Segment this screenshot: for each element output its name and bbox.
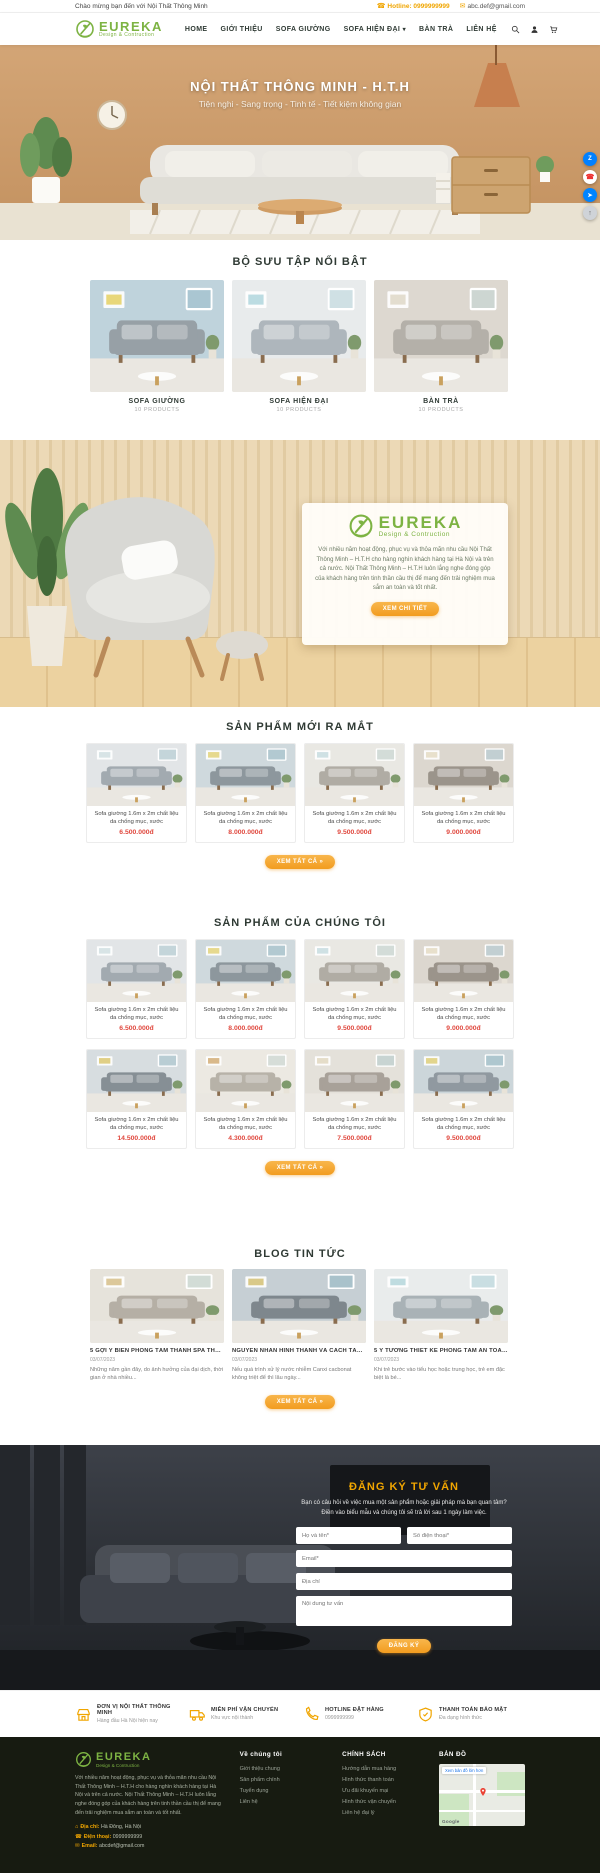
product-photo [196, 940, 295, 1002]
product-card[interactable]: Sofa giường 1.6m x 2m chất liệu da chống… [86, 743, 187, 843]
product-price: 7.500.000đ [305, 1133, 404, 1148]
product-price: 8.000.000đ [196, 1023, 295, 1038]
collection-card-ban-tra[interactable]: BÀN TRÀ 10 PRODUCTS [374, 280, 508, 413]
consult-section: ĐĂNG KÝ TƯ VẤN Bạn có câu hỏi về việc mu… [0, 1445, 600, 1690]
about-detail-button[interactable]: XEM CHI TIẾT [371, 602, 439, 616]
truck-icon [189, 1706, 206, 1723]
product-price: 6.500.000đ [87, 1023, 186, 1038]
cart-icon[interactable] [549, 25, 558, 34]
map-pin-icon [479, 1788, 487, 1796]
search-icon[interactable] [511, 25, 520, 34]
footer-col-policy: CHÍNH SÁCH Hướng dẫn mua hàng Hình thức … [342, 1751, 423, 1852]
footer-link[interactable]: Sản phẩm chính [240, 1775, 327, 1786]
product-photo [196, 744, 295, 806]
footer-link[interactable]: Ưu đãi khuyến mại [342, 1786, 423, 1797]
about-text: Với nhiều năm hoạt động, phục vụ và thỏa… [314, 546, 496, 594]
product-price: 8.000.000đ [196, 827, 295, 842]
collection-card-sofa-hien-dai[interactable]: SOFA HIỆN ĐẠI 10 PRODUCTS [232, 280, 366, 413]
blog-section: BLOG TIN TỨC 5 GỢI Ý BIẾN PHÒNG TẮM THÀN… [0, 1240, 600, 1445]
chevron-down-icon: ▾ [403, 27, 406, 33]
product-price: 9.500.000đ [305, 1023, 404, 1038]
blog-card[interactable]: 5 Ý TƯỞNG THIẾT KẾ PHÒNG TẮM AN TOÀN CHO… [374, 1269, 508, 1383]
footer-link[interactable]: Giới thiệu chung [240, 1764, 327, 1775]
blog-photo [232, 1269, 366, 1343]
google-logo: Google [442, 1819, 460, 1824]
product-photo [414, 940, 513, 1002]
phone-field[interactable] [407, 1527, 512, 1544]
product-photo [196, 1050, 295, 1112]
footer-link[interactable]: Hướng dẫn mua hàng [342, 1764, 423, 1775]
hero-photo [0, 45, 600, 240]
footer-link[interactable]: Hình thức thanh toán [342, 1775, 423, 1786]
footer-link[interactable]: Tuyển dụng [240, 1786, 327, 1797]
mail-icon: ✉ [460, 3, 466, 10]
footer-logo[interactable]: EUREKADesign & Contruction [75, 1751, 224, 1768]
footer-link[interactable]: Liên hệ [240, 1797, 327, 1808]
product-price: 6.500.000đ [87, 827, 186, 842]
blog-heading: BLOG TIN TỨC [0, 1248, 600, 1260]
scroll-top-icon[interactable]: ↑ [583, 206, 597, 220]
product-price: 9.000.000đ [414, 827, 513, 842]
collections-heading: BỘ SƯU TẬP NỔI BẬT [0, 256, 600, 268]
name-field[interactable] [296, 1527, 401, 1544]
new-products-section: SẢN PHẨM MỚI RA MẮT Sofa giường 1.6m x 2… [0, 707, 600, 905]
hero-banner: NỘI THẤT THÔNG MINH - H.T.H Tiện nghi - … [0, 45, 600, 240]
footer-address: ⌂Địa chỉ: Hà Đông, Hà Nội [75, 1823, 224, 1833]
product-photo [305, 940, 404, 1002]
feature-secure-payment: THANH TOÁN BẢO MẬTĐa dạng hình thức [417, 1706, 525, 1723]
phone-icon[interactable]: ☎ [583, 170, 597, 184]
collection-photo [232, 280, 366, 392]
footer: EUREKADesign & Contruction Với nhiều năm… [0, 1737, 600, 1873]
phone-icon: ☎ [377, 3, 386, 10]
navbar: EUREKA Design & Contruction HOME GIỚI TH… [0, 13, 600, 45]
welcome-text: Chào mừng bạn đến với Nội Thất Thông Min… [75, 3, 208, 10]
eureka-leaf-icon [75, 19, 95, 39]
main-menu: HOME GIỚI THIỆU SOFA GIƯỜNG SOFA HIỆN ĐẠ… [185, 26, 497, 33]
eureka-leaf-icon [75, 1751, 92, 1768]
product-price: 4.300.000đ [196, 1133, 295, 1148]
hero-title: NỘI THẤT THÔNG MINH - H.T.H [0, 79, 600, 94]
blog-photo [90, 1269, 224, 1343]
brand-logo[interactable]: EUREKA Design & Contruction [75, 19, 163, 39]
collection-card-sofa-giuong[interactable]: SOFA GIƯỜNG 10 PRODUCTS [90, 280, 224, 413]
product-card[interactable]: Sofa giường 1.6m x 2m chất liệu da chống… [413, 939, 514, 1039]
address-field[interactable] [296, 1573, 512, 1590]
consult-description: Bạn có câu hỏi về việc mua một sản phẩm … [300, 1499, 508, 1518]
product-price: 14.500.000đ [87, 1133, 186, 1148]
nav-item-sofa-giuong[interactable]: SOFA GIƯỜNG [276, 26, 331, 33]
product-card[interactable]: Sofa giường 1.6m x 2m chất liệu da chống… [195, 1049, 296, 1149]
home-icon: ⌂ [75, 1824, 78, 1830]
user-icon[interactable] [530, 25, 539, 34]
footer-link[interactable]: Hình thức vận chuyển [342, 1797, 423, 1808]
google-map[interactable]: Xem bản đồ lớn hơn Google [439, 1764, 525, 1826]
messenger-icon[interactable]: ➤ [583, 188, 597, 202]
content-field[interactable] [296, 1596, 512, 1626]
about-section: EUREKA Design & Contruction Với nhiều nă… [0, 440, 600, 707]
footer-phone[interactable]: ☎Điện thoại: 0999999999 [75, 1833, 224, 1843]
eureka-leaf-icon [348, 513, 374, 539]
footer-about-text: Với nhiều năm hoạt động, phục vụ và thỏa… [75, 1774, 224, 1818]
footer-contact: ⌂Địa chỉ: Hà Đông, Hà Nội ☎Điện thoại: 0… [75, 1823, 224, 1853]
footer-link[interactable]: Liên hệ đại lý [342, 1808, 423, 1819]
product-card[interactable]: Sofa giường 1.6m x 2m chất liệu da chống… [195, 939, 296, 1039]
product-price: 9.500.000đ [414, 1133, 513, 1148]
product-photo [87, 744, 186, 806]
product-card[interactable]: Sofa giường 1.6m x 2m chất liệu da chống… [86, 1049, 187, 1149]
feature-top-unit: ĐƠN VỊ NỘI THẤT THÔNG MINHHàng đầu Hà Nộ… [75, 1704, 183, 1724]
product-card[interactable]: Sofa giường 1.6m x 2m chất liệu da chống… [86, 939, 187, 1039]
our-products-heading: SẢN PHẨM CỦA CHÚNG TÔI [0, 917, 600, 929]
our-products-view-all-button[interactable]: XEM TẤT CẢ » [265, 1161, 335, 1175]
nav-item-sofa-hien-dai[interactable]: SOFA HIỆN ĐẠI ▾ [344, 26, 406, 33]
map-enlarge-link[interactable]: Xem bản đồ lớn hơn [442, 1767, 486, 1774]
footer-col-map: BẢN ĐỒ Xem bản đồ lớn hơn Google [439, 1751, 525, 1852]
product-card[interactable]: Sofa giường 1.6m x 2m chất liệu da chống… [304, 939, 405, 1039]
blog-view-all-button[interactable]: XEM TẤT CẢ » [265, 1395, 335, 1409]
product-card[interactable]: Sofa giường 1.6m x 2m chất liệu da chống… [304, 1049, 405, 1149]
footer-col-about: Về chúng tôi Giới thiệu chung Sản phẩm c… [240, 1751, 327, 1852]
blog-card[interactable]: 5 GỢI Ý BIẾN PHÒNG TẮM THÀNH SPA THƯ GIÃ… [90, 1269, 224, 1383]
product-photo [305, 744, 404, 806]
shield-icon [417, 1706, 434, 1723]
blog-photo [374, 1269, 508, 1343]
product-card[interactable]: Sofa giường 1.6m x 2m chất liệu da chống… [413, 743, 514, 843]
nav-item-lien-he[interactable]: LIÊN HỆ [466, 26, 496, 33]
mail-icon: ✉ [75, 1843, 80, 1849]
about-brand-tagline: Design & Contruction [379, 531, 463, 538]
product-photo [87, 940, 186, 1002]
email-field[interactable] [296, 1550, 512, 1567]
register-button[interactable]: ĐĂNG KÝ [377, 1639, 431, 1653]
product-card[interactable]: Sofa giường 1.6m x 2m chất liệu da chống… [304, 743, 405, 843]
product-photo [414, 744, 513, 806]
product-photo [305, 1050, 404, 1112]
consult-heading: ĐĂNG KÝ TƯ VẤN [296, 1481, 512, 1493]
hero-subtitle: Tiện nghi - Sang trọng - Tinh tế - Tiết … [0, 99, 600, 109]
about-card: EUREKA Design & Contruction Với nhiều nă… [302, 503, 508, 645]
footer-email[interactable]: ✉Email: abcdef@gmail.com [75, 1842, 224, 1852]
new-products-heading: SẢN PHẨM MỚI RA MẮT [0, 721, 600, 733]
features-bar: ĐƠN VỊ NỘI THẤT THÔNG MINHHàng đầu Hà Nộ… [0, 1690, 600, 1737]
product-card[interactable]: Sofa giường 1.6m x 2m chất liệu da chống… [413, 1049, 514, 1149]
blog-card[interactable]: NGUYÊN NHÂN HÌNH THÀNH VÀ CÁCH TẨY CẶN C… [232, 1269, 366, 1383]
feature-hotline: HOTLINE ĐẶT HÀNG0999999999 [303, 1706, 411, 1723]
nav-item-ban-tra[interactable]: BÀN TRÀ [419, 26, 453, 33]
store-icon [75, 1706, 92, 1723]
nav-item-gioi-thieu[interactable]: GIỚI THIỆU [221, 26, 263, 33]
hotline-link[interactable]: ☎Hotline: 0999999999 [377, 2, 450, 10]
topbar: Chào mừng bạn đến với Nội Thất Thông Min… [0, 0, 600, 13]
zalo-icon[interactable]: Z [583, 152, 597, 166]
nav-item-home[interactable]: HOME [185, 26, 208, 33]
email-link[interactable]: ✉abc.def@gmail.com [460, 2, 525, 10]
product-photo [414, 1050, 513, 1112]
about-brand-name: EUREKA [379, 514, 463, 531]
brand-tagline: Design & Contruction [99, 33, 163, 38]
product-photo [87, 1050, 186, 1112]
feature-free-shipping: MIỄN PHÍ VẬN CHUYỂNKhu vực nội thành [189, 1706, 297, 1723]
page: Chào mừng bạn đến với Nội Thất Thông Min… [0, 0, 600, 1873]
collections-section: BỘ SƯU TẬP NỔI BẬT SOFA GIƯỜNG 10 PRODUC… [0, 240, 600, 440]
collection-photo [90, 280, 224, 392]
product-card[interactable]: Sofa giường 1.6m x 2m chất liệu da chống… [195, 743, 296, 843]
product-price: 9.500.000đ [305, 827, 404, 842]
new-products-view-all-button[interactable]: XEM TẤT CẢ » [265, 855, 335, 869]
armchair-photo [30, 479, 280, 689]
product-price: 9.000.000đ [414, 1023, 513, 1038]
floating-contacts: Z ☎ ➤ ↑ [583, 152, 597, 220]
collection-photo [374, 280, 508, 392]
phone-icon [303, 1706, 320, 1723]
phone-icon: ☎ [75, 1834, 82, 1840]
consult-form: ĐĂNG KÝ TƯ VẤN Bạn có câu hỏi về việc mu… [296, 1481, 512, 1653]
our-products-section: SẢN PHẨM CỦA CHÚNG TÔI Sofa giường 1.6m … [0, 905, 600, 1240]
